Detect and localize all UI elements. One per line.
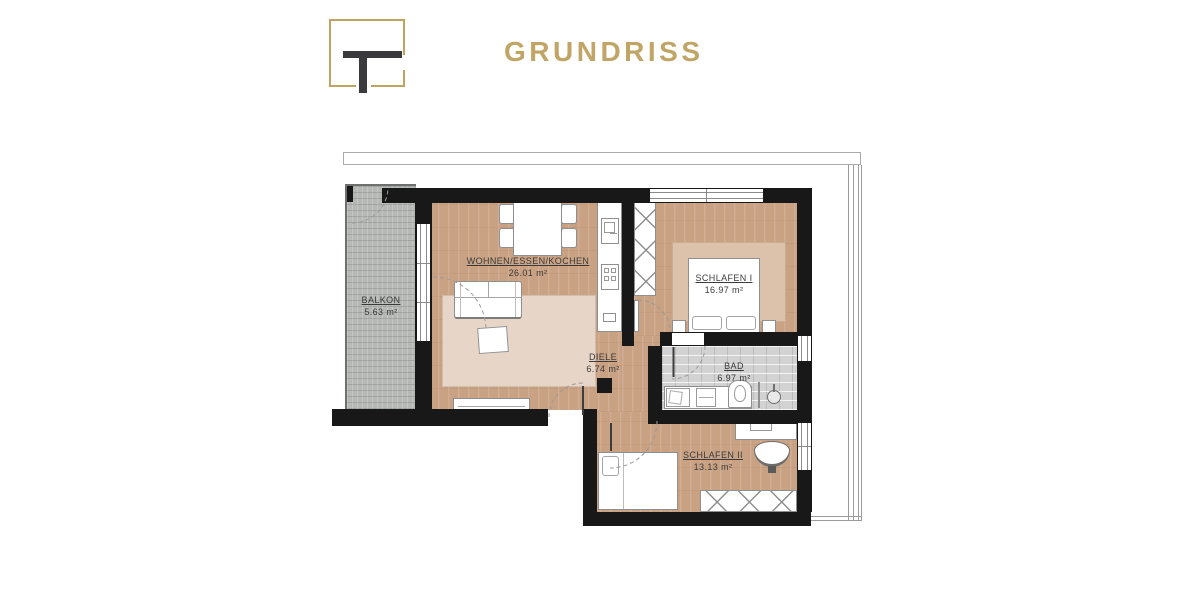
room-label-schlafen-1: SCHLAFEN I 16.97 m² [695,272,752,296]
bedroom1-door-arc [638,300,670,332]
door-swing-arcs [330,148,875,540]
room-label-bad: BAD 6.97 m² [717,360,750,384]
page-title: GRUNDRISS [504,36,704,68]
room-label-diele: DIELE 6.74 m² [586,351,619,375]
company-logo [329,19,405,87]
balcony-corner-arc [352,187,388,223]
room-label-wohnen-essen-kochen: WOHNEN/ESSEN/KOCHEN 26.01 m² [467,255,590,279]
bedroom2-door-arc [610,421,657,468]
floorplan-page: GRUNDRISS [0,0,1200,600]
logo-letter-t-stem [359,55,367,93]
logo-letter-t-bar [343,51,402,58]
room-label-balkon: BALKON 5.63 m² [362,294,401,318]
room-label-schlafen-2: SCHLAFEN II 13.13 m² [683,449,743,473]
floorplan: BALKON 5.63 m² WOHNEN/ESSEN/KOCHEN 26.01… [330,148,875,540]
bathroom-door-arc [672,346,705,379]
entrance-door-arc [549,383,583,417]
balcony-door-arc [433,277,486,330]
